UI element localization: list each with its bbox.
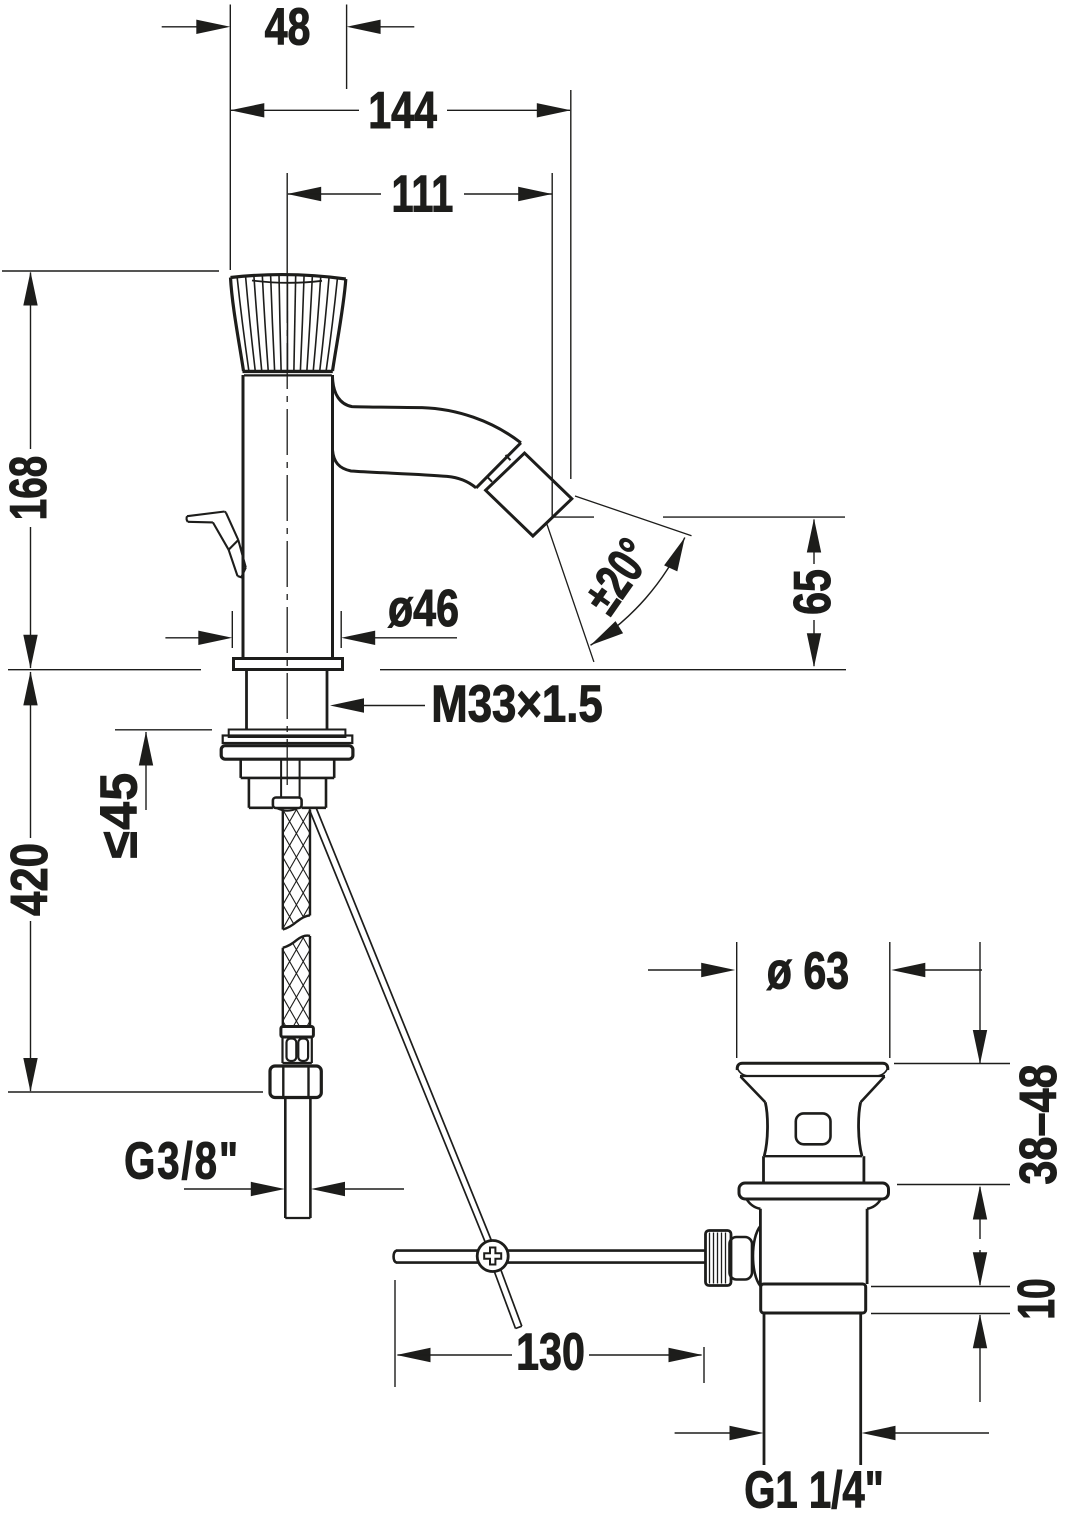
- svg-text:ø 63: ø 63: [767, 942, 849, 999]
- svg-text:168: 168: [0, 456, 58, 520]
- svg-text:111: 111: [392, 165, 454, 223]
- svg-text:M33×1.5: M33×1.5: [431, 676, 603, 733]
- svg-text:420: 420: [2, 843, 59, 916]
- svg-text:10: 10: [1007, 1278, 1066, 1319]
- svg-text:G1 1/4": G1 1/4": [744, 1461, 884, 1519]
- svg-text:38–48: 38–48: [1011, 1064, 1068, 1184]
- svg-text:G3/8": G3/8": [124, 1132, 240, 1190]
- svg-text:48: 48: [265, 0, 311, 56]
- svg-text:144: 144: [368, 82, 437, 139]
- svg-text:130: 130: [516, 1323, 585, 1380]
- svg-text:ø46: ø46: [388, 580, 459, 637]
- svg-text:65: 65: [784, 569, 841, 615]
- svg-text:≤45: ≤45: [90, 771, 148, 858]
